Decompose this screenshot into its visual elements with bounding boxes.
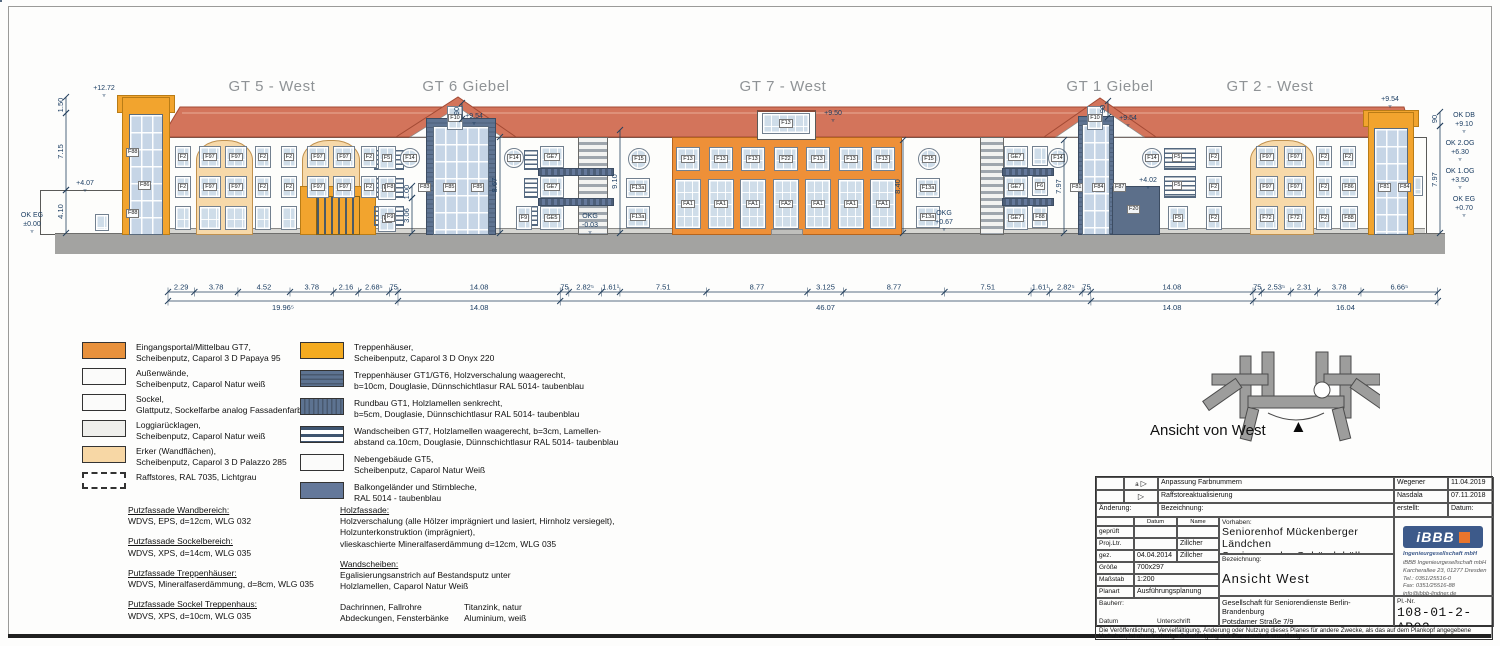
tb-row-datum — [1134, 538, 1177, 550]
window-label: F88 — [126, 209, 139, 218]
window-label: GE7 — [1008, 183, 1023, 192]
legend-item: Wandscheiben GT7, Holzlamellen waagerech… — [300, 426, 618, 448]
right-stair-tower-glazing — [1374, 128, 1408, 235]
window-label: F97 — [311, 153, 324, 162]
bauherr-value-cell: Gesellschaft für Seniorendienste Berlin-… — [1219, 596, 1394, 627]
section-title: GT 7 - West — [740, 78, 827, 95]
window-label: GE7 — [544, 153, 559, 162]
level-triangle-icon: ▿ — [21, 230, 43, 234]
tb-row-datum: 04.04.2014 — [1134, 550, 1177, 562]
spec-pair-item: Dachrinnen, Fallrohre — [340, 602, 464, 613]
legend-swatch — [300, 342, 344, 359]
legend-swatch — [82, 368, 126, 385]
logo-square-icon — [1459, 532, 1470, 543]
window-label: F2 — [364, 183, 374, 192]
window-label: F14 — [403, 154, 416, 163]
window-label: F13a — [630, 213, 647, 222]
elevation-mark: OK EG+0.70▿ — [1453, 196, 1475, 218]
window-label: F13 — [844, 155, 857, 164]
window — [1032, 146, 1048, 166]
spec-line — [128, 590, 314, 599]
balcony-band-1 — [538, 168, 614, 176]
window: F2 — [281, 146, 297, 168]
unterschrift-label: Unterschrift — [1157, 618, 1190, 625]
window-label: F10 — [448, 114, 461, 123]
tb-row-label: Proj.Ltr. — [1096, 538, 1134, 550]
window-label: FA2 — [779, 200, 793, 209]
gt7-entrance-steps — [771, 229, 803, 235]
window: F2 — [255, 176, 271, 198]
legend-text: Eingangsportal/Mittelbau GT7,Scheibenput… — [136, 342, 281, 364]
window: F72 — [1284, 206, 1306, 230]
elevation-mark-line: OK DB — [1453, 112, 1475, 121]
revision-date: 07.11.2018 — [1448, 490, 1494, 503]
aenderung-header: Änderung: — [1096, 503, 1158, 517]
window-label: F97 — [1288, 183, 1301, 192]
window-label: F5 — [1172, 181, 1182, 190]
company-address: iBBB Ingenieurgesellschaft mbHKarcherall… — [1403, 560, 1486, 596]
bezeichnung-header: Bezeichnung: — [1158, 503, 1394, 517]
window-label: F85 — [471, 183, 484, 192]
window-label: GE5 — [544, 214, 559, 223]
revision-name: Wegener — [1394, 477, 1448, 490]
window-label: GE7 — [1008, 153, 1023, 162]
legend-item: Sockel,Glattputz, Sockelfarbe analog Fas… — [82, 394, 311, 416]
erstellt-header: erstellt: — [1394, 503, 1448, 517]
bauherr-cell: Bauherr: Datum Unterschrift — [1096, 598, 1219, 627]
window: F97 — [333, 176, 355, 198]
window: GE5 — [540, 206, 564, 230]
window: F13 — [709, 147, 733, 171]
elevation-mark: +4.07▿ — [76, 180, 94, 193]
tb-row-label: gez. — [1096, 550, 1134, 562]
spec-line: vlieskaschierte Mineralfaserdämmung d=12… — [340, 539, 614, 550]
window: F97 — [225, 176, 247, 198]
legend-item: Außenwände,Scheibenputz, Caparol Natur w… — [82, 368, 265, 390]
spec-pair-value: Aluminium, weiß — [464, 613, 614, 624]
section-title: GT 6 Giebel — [422, 78, 509, 95]
elevation-mark-line: OK 1.OG — [1446, 168, 1475, 177]
elevation-mark-line: OKG — [935, 210, 953, 219]
window-label: FA1 — [844, 200, 858, 209]
level-triangle-icon: ▿ — [76, 189, 94, 193]
window: F97 — [225, 146, 247, 168]
spec-line: Holzunterkonstruktion (imprägniert), — [340, 527, 614, 538]
spec-line: Putzfassade Treppenhäuser: — [128, 568, 314, 579]
legend-text: Wandscheiben GT7, Holzlamellen waagerech… — [354, 426, 618, 448]
window: F86 — [1340, 176, 1358, 198]
legend-item: Nebengebäude GT5,Scheibenputz, Caparol N… — [300, 454, 485, 476]
level-triangle-icon: ▿ — [582, 231, 598, 235]
legend-text: Sockel,Glattputz, Sockelfarbe analog Fas… — [136, 394, 311, 416]
window: F2 — [361, 146, 377, 168]
spec-line: WDVS, XPS, d=10cm, WLG 035 — [128, 611, 314, 622]
revision-spacer — [1096, 477, 1124, 490]
plan-number-label: Pl.-Nr. — [1397, 598, 1491, 605]
level-triangle-icon: ▿ — [93, 94, 115, 98]
elevation-mark: +9.54▿ — [1381, 96, 1399, 109]
tb-row-value: Ausführungsplanung — [1134, 586, 1219, 598]
window: F9 — [516, 206, 532, 230]
window: GE7 — [540, 176, 564, 198]
legend-item: Rundbau GT1, Holzlamellen senkrecht,b=5c… — [300, 398, 579, 420]
legend-text: Treppenhäuser,Scheibenputz, Caparol 3 D … — [354, 342, 494, 364]
window: F13a — [916, 178, 940, 198]
revision-description: Anpassung Farbnummern — [1158, 477, 1394, 490]
window-label: F5 — [1172, 153, 1182, 162]
legend-swatch — [300, 370, 344, 387]
tb-row-value: 1:200 — [1134, 574, 1219, 586]
vorhaben-cell: Vorhaben: Seniorenhof Mückenberger Ländc… — [1219, 517, 1394, 554]
window: F22 — [774, 147, 798, 171]
ground-strip — [55, 233, 1445, 254]
window — [255, 206, 271, 230]
window: F97 — [1256, 176, 1278, 198]
window: F10 — [447, 106, 463, 130]
company-address-line: Tel.: 0351/25516-0 — [1403, 576, 1486, 584]
legend-item: Raffstores, RAL 7035, Lichtgrau — [82, 472, 257, 489]
window-label: F83 — [418, 183, 431, 192]
window-label: F2 — [1209, 183, 1219, 192]
window — [1413, 176, 1423, 196]
window: F97 — [1284, 146, 1306, 168]
window: F97 — [307, 146, 329, 168]
revision-name: Nasdala — [1394, 490, 1448, 503]
spec-line: Putzfassade Sockelbereich: — [128, 536, 314, 547]
tb-row-label: Größe — [1096, 562, 1134, 574]
revision-flag: a ▷ — [1124, 477, 1158, 490]
level-triangle-icon: ▿ — [1119, 124, 1137, 128]
window: F88 — [1032, 206, 1048, 228]
gt1-stair-tower-glazing — [1082, 124, 1110, 235]
elevation-mark: +9.50▿ — [824, 110, 842, 123]
spec-line: WDVS, EPS, d=12cm, WLG 032 — [128, 516, 314, 527]
window-label: F6 — [1035, 182, 1045, 191]
window: F72 — [1256, 206, 1278, 230]
window-label: F13 — [746, 155, 759, 164]
section-title: GT 1 Giebel — [1066, 78, 1153, 95]
level-triangle-icon: ▿ — [935, 228, 953, 232]
datum-label: Datum — [1099, 618, 1118, 625]
plan-number-value: 108-01-2-AP02 — [1397, 605, 1491, 627]
spec-line: Putzfassade Sockel Treppenhaus: — [128, 599, 314, 610]
window-label: FA1 — [876, 200, 890, 209]
window-label: F15 — [922, 155, 935, 164]
level-triangle-icon: ▿ — [824, 119, 842, 123]
legend-text: Loggiarücklagen,Scheibenputz, Caparol Na… — [136, 420, 265, 442]
elevation-mark: +4.02▿ — [1139, 177, 1157, 190]
window-label: F20 — [1127, 205, 1140, 214]
round-window: F14 — [400, 148, 420, 168]
window-label: F97 — [1288, 153, 1301, 162]
window-label: F9 — [519, 214, 529, 223]
elevation-mark-line: OK EG — [21, 212, 43, 221]
elevation-mark-line: OK EG — [1453, 196, 1475, 205]
level-triangle-icon: ▿ — [1446, 186, 1475, 190]
tb-row-name: Zillcher — [1177, 550, 1219, 562]
window-label: F2 — [178, 153, 188, 162]
spec-line — [128, 559, 314, 568]
window-label: F14 — [507, 154, 520, 163]
window: F6 — [1032, 176, 1048, 196]
window: F2 — [175, 146, 191, 168]
window-label: F97 — [337, 153, 350, 162]
legend-swatch — [82, 342, 126, 359]
window-label: F87 — [1113, 183, 1126, 192]
project-name-line1: Seniorenhof Mückenberger Ländchen — [1222, 526, 1391, 550]
drawing-sheet: 2.293.784.523.782.162.68⁵7514.08752.82⁵1… — [0, 0, 1500, 646]
name-column-header: Name — [1177, 517, 1219, 526]
spec-line: Holzlamellen, Caparol Natur Weiß — [340, 581, 614, 592]
window: F2 — [1316, 146, 1332, 168]
gt6-balcony-rail-2 — [524, 178, 538, 198]
keyplan-wing — [1212, 374, 1268, 385]
window-label: F97 — [337, 183, 350, 192]
spec-line — [128, 527, 314, 536]
company-logo: iBBB — [1403, 526, 1483, 548]
bezeichnung-cell: Bezeichnung: Ansicht West — [1219, 554, 1394, 596]
round-window: F14 — [504, 148, 524, 168]
tb-row-name: Zillcher — [1177, 538, 1219, 550]
window-label: F88 — [1342, 214, 1355, 223]
window: GE7 — [1004, 146, 1028, 168]
keyplan-rundbau — [1314, 382, 1330, 398]
keyplan-center-bar — [1248, 396, 1344, 408]
legend-item: Treppenhäuser GT1/GT6, Holzverschalung w… — [300, 370, 584, 392]
window-label: F2 — [284, 153, 294, 162]
elevation-mark: OKG+0.67▿ — [935, 210, 953, 232]
legend-item: Balkongeländer und Stirnbleche,RAL 5014 … — [300, 482, 477, 504]
window-label: F81 — [1070, 183, 1083, 192]
window-label: F14 — [1051, 154, 1064, 163]
gt5-portal-slats — [316, 196, 360, 235]
elevation-mark: +9.54▿ — [465, 113, 483, 126]
elevation-mark: OK EG±0.00▿ — [21, 212, 43, 234]
balcony-band-3 — [1002, 168, 1054, 176]
window-label: F13 — [681, 155, 694, 164]
window-label: F88 — [126, 148, 139, 157]
window-label: F88 — [1033, 213, 1046, 222]
window: F13a — [626, 178, 650, 198]
elevation-mark: OK DB+9.10▿ — [1453, 112, 1475, 134]
window-label: F8 — [385, 183, 395, 192]
unused — [0, 0, 2, 2]
window-label: F97 — [1260, 153, 1273, 162]
company-address-line: Karcherallee 23, 01277 Dresden — [1403, 568, 1486, 576]
window: F2 — [1340, 146, 1356, 168]
window-label: F2 — [1209, 153, 1219, 162]
window: F2 — [255, 146, 271, 168]
window-label: F97 — [203, 183, 216, 192]
spec-line: Putzfassade Wandbereich: — [128, 505, 314, 516]
window: FA1 — [838, 179, 864, 229]
window: F97 — [333, 146, 355, 168]
elevation-mark: OK 2.OG+6.30▿ — [1446, 140, 1475, 162]
window-label: F2 — [1319, 183, 1329, 192]
window: F88 — [1340, 206, 1358, 230]
window — [95, 214, 109, 231]
window: F13 — [676, 147, 700, 171]
spec-line — [340, 550, 614, 559]
window: F13 — [871, 147, 895, 171]
tb-row-name — [1177, 526, 1219, 538]
elevation-mark-line: OK 2.OG — [1446, 140, 1475, 149]
legend-item: Treppenhäuser,Scheibenputz, Caparol 3 D … — [300, 342, 494, 364]
round-window: F15 — [918, 148, 940, 170]
spec-pair-row: Dachrinnen, FallrohreTitanzink, natur — [340, 602, 614, 613]
window: F97 — [199, 146, 221, 168]
elevation-mark: +9.54▿ — [1119, 115, 1137, 128]
gt6-stair-tower-glazing — [433, 126, 489, 235]
window-label: F86 — [138, 181, 151, 190]
window-label: GE7 — [544, 183, 559, 192]
window-label: F97 — [1260, 183, 1273, 192]
window-label: F84 — [1092, 183, 1105, 192]
window: F2 — [175, 176, 191, 198]
window: FA2 — [773, 179, 799, 229]
spec-line: Wandscheiben: — [340, 559, 614, 570]
bezeichnung-label: Bezeichnung: — [1222, 556, 1391, 563]
legend-item: Erker (Wandflächen),Scheibenputz, Caparo… — [82, 446, 287, 468]
elevation-mark: OKG-0.03▿ — [582, 213, 598, 235]
window-label: FA1 — [746, 200, 760, 209]
level-triangle-icon: ▿ — [1446, 158, 1475, 162]
bauherr-label: Bauherr: — [1099, 600, 1216, 607]
window — [199, 206, 221, 230]
elevation-mark-line: OKG — [582, 213, 598, 222]
window: FA1 — [708, 179, 734, 229]
window-label: F2 — [178, 183, 188, 192]
window-label: F13a — [630, 184, 647, 193]
revision-description: Raffstoreaktualisierung — [1158, 490, 1394, 503]
spec-line — [340, 593, 614, 602]
window-label: F2 — [284, 183, 294, 192]
window: F97 — [1284, 176, 1306, 198]
window: F13a — [626, 206, 650, 228]
bauherr-line1: Gesellschaft für Seniorendienste Berlin-… — [1222, 598, 1391, 617]
window-label: F85 — [443, 183, 456, 192]
window-label: F2 — [1209, 214, 1219, 223]
spec-line: WDVS, Mineralfaserdämmung, d=8cm, WLG 03… — [128, 579, 314, 590]
legend-text: Balkongeländer und Stirnbleche,RAL 5014 … — [354, 482, 477, 504]
spec-pair-value: Titanzink, natur — [464, 602, 614, 613]
vorhaben-label: Vorhaben: — [1222, 519, 1391, 526]
balcony-band-2 — [538, 198, 614, 206]
company-address-line: Fax: 0351/25516-88 — [1403, 583, 1486, 591]
window-label: F97 — [229, 183, 242, 192]
balcony-band-4 — [1002, 198, 1054, 206]
window-label: F97 — [203, 153, 216, 162]
window: FA1 — [870, 179, 896, 229]
drawing-title: Ansicht West — [1222, 571, 1391, 586]
spec-putzfassade: Putzfassade Wandbereich:WDVS, EPS, d=12c… — [128, 505, 314, 622]
window-label: F97 — [311, 183, 324, 192]
round-window: F14 — [1142, 148, 1162, 168]
window: FA1 — [805, 179, 831, 229]
company-cell: iBBB Ingenieurgesellschaft mbH iBBB Inge… — [1394, 517, 1494, 596]
title-block: a ▷Anpassung FarbnummernWegener11.04.201… — [1095, 476, 1493, 626]
window: F2 — [1316, 176, 1332, 198]
window: F97 — [1256, 146, 1278, 168]
revision-date: 11.04.2019 — [1448, 477, 1494, 490]
window: F10 — [1087, 106, 1103, 130]
tb-row-value: 700x297 — [1134, 562, 1219, 574]
window-label: F72 — [1288, 214, 1301, 223]
datum-header: Datum: — [1448, 503, 1494, 517]
round-window: F14 — [1048, 148, 1068, 168]
elevation-mark: +12.72▿ — [93, 85, 115, 98]
window: F5 — [378, 146, 396, 170]
window-label: F81 — [1378, 183, 1391, 192]
tb-row-label: Maßstab — [1096, 574, 1134, 586]
logo-subtitle: Ingenieurgesellschaft mbH — [1403, 551, 1477, 559]
window: F97 — [307, 176, 329, 198]
window: GE7 — [1004, 176, 1028, 198]
legend-swatch — [300, 454, 344, 471]
elevation-mark: OK 1.OG+3.50▿ — [1446, 168, 1475, 190]
window: F13 — [741, 147, 765, 171]
keyplan-wing — [1324, 374, 1380, 385]
window-label: F22 — [779, 155, 792, 164]
legend-swatch — [300, 398, 344, 415]
window-label: F2 — [1319, 214, 1329, 223]
window-label: FA1 — [811, 200, 825, 209]
datum-column-header: Datum — [1134, 517, 1177, 526]
spec-line: Egalisierungsanstrich auf Bestandsputz u… — [340, 570, 614, 581]
window: F2 — [1206, 176, 1222, 198]
window: GE7 — [540, 146, 564, 168]
level-triangle-icon: ▿ — [1381, 105, 1399, 109]
level-triangle-icon: ▿ — [465, 122, 483, 126]
legend-text: Erker (Wandflächen),Scheibenputz, Caparo… — [136, 446, 287, 468]
spec-line: Holzfassade: — [340, 505, 614, 516]
window — [281, 206, 297, 230]
window: FA1 — [675, 179, 701, 229]
tb-row-datum — [1134, 526, 1177, 538]
window-label: F10 — [1088, 114, 1101, 123]
legend-swatch — [82, 446, 126, 463]
legend-swatch — [82, 472, 126, 489]
legend-swatch — [82, 420, 126, 437]
legend-text: Raffstores, RAL 7035, Lichtgrau — [136, 472, 257, 483]
window-label: FA1 — [681, 200, 695, 209]
window-label: F5 — [382, 154, 392, 163]
window-label: FA1 — [714, 200, 728, 209]
window: F13 — [806, 147, 830, 171]
legend-item: Loggiarücklagen,Scheibenputz, Caparol Na… — [82, 420, 265, 442]
window-label: F97 — [229, 153, 242, 162]
window-label: F2 — [1343, 153, 1353, 162]
window: FA1 — [740, 179, 766, 229]
legend-swatch — [82, 394, 126, 411]
company-address-line: iBBB Ingenieurgesellschaft mbH — [1403, 560, 1486, 568]
window: F13 — [839, 147, 863, 171]
section-title: GT 5 - West — [229, 78, 316, 95]
window — [225, 206, 247, 230]
section-title: GT 2 - West — [1227, 78, 1314, 95]
plan-number-cell: Pl.-Nr. 108-01-2-AP02 — [1394, 596, 1494, 627]
spec-pair-item: Abdeckungen, Fensterbänke — [340, 613, 464, 624]
annex-gt5 — [40, 190, 124, 235]
window-label: F13a — [920, 184, 937, 193]
window-label: F13 — [811, 155, 824, 164]
level-triangle-icon: ▿ — [1453, 130, 1475, 134]
revision-flag: ▷ — [1124, 490, 1158, 503]
legend-text: Rundbau GT1, Holzlamellen senkrecht,b=5c… — [354, 398, 579, 420]
revision-spacer — [1096, 490, 1124, 503]
window: F5 — [1168, 206, 1188, 230]
material-legend: Eingangsportal/Mittelbau GT7,Scheibenput… — [82, 342, 722, 502]
